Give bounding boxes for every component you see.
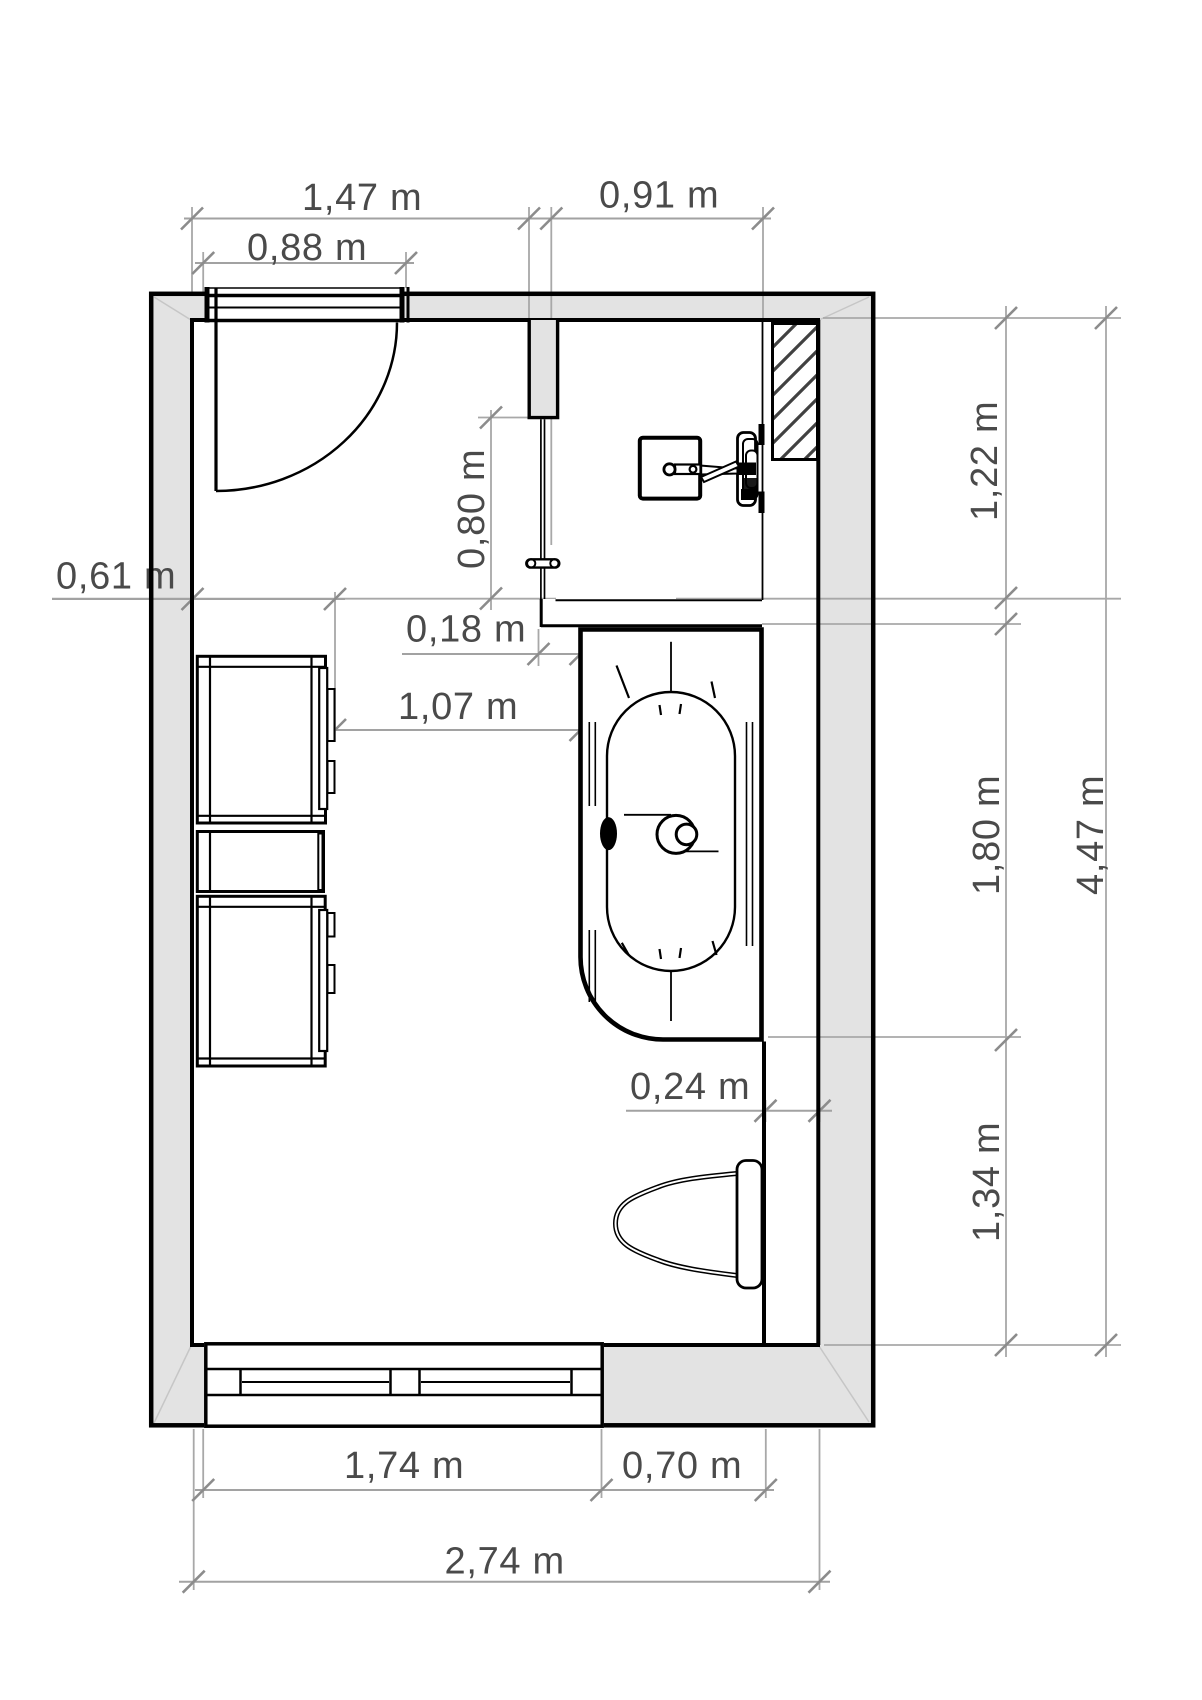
svg-text:1,22 m: 1,22 m — [964, 401, 1006, 521]
svg-text:1,80 m: 1,80 m — [966, 775, 1008, 895]
svg-text:4,47 m: 4,47 m — [1070, 775, 1112, 895]
svg-text:0,88 m: 0,88 m — [247, 227, 367, 269]
svg-text:0,80 m: 0,80 m — [451, 449, 493, 569]
svg-text:1,34 m: 1,34 m — [966, 1122, 1008, 1242]
svg-text:2,74 m: 2,74 m — [445, 1541, 565, 1583]
svg-text:0,61 m: 0,61 m — [56, 556, 176, 598]
svg-text:0,18 m: 0,18 m — [406, 609, 526, 651]
svg-text:1,47 m: 1,47 m — [302, 177, 422, 219]
svg-text:1,74 m: 1,74 m — [344, 1445, 464, 1487]
svg-text:0,70 m: 0,70 m — [622, 1445, 742, 1487]
svg-text:0,24 m: 0,24 m — [630, 1066, 750, 1108]
svg-text:1,07 m: 1,07 m — [398, 686, 518, 728]
svg-text:0,91 m: 0,91 m — [599, 175, 719, 217]
